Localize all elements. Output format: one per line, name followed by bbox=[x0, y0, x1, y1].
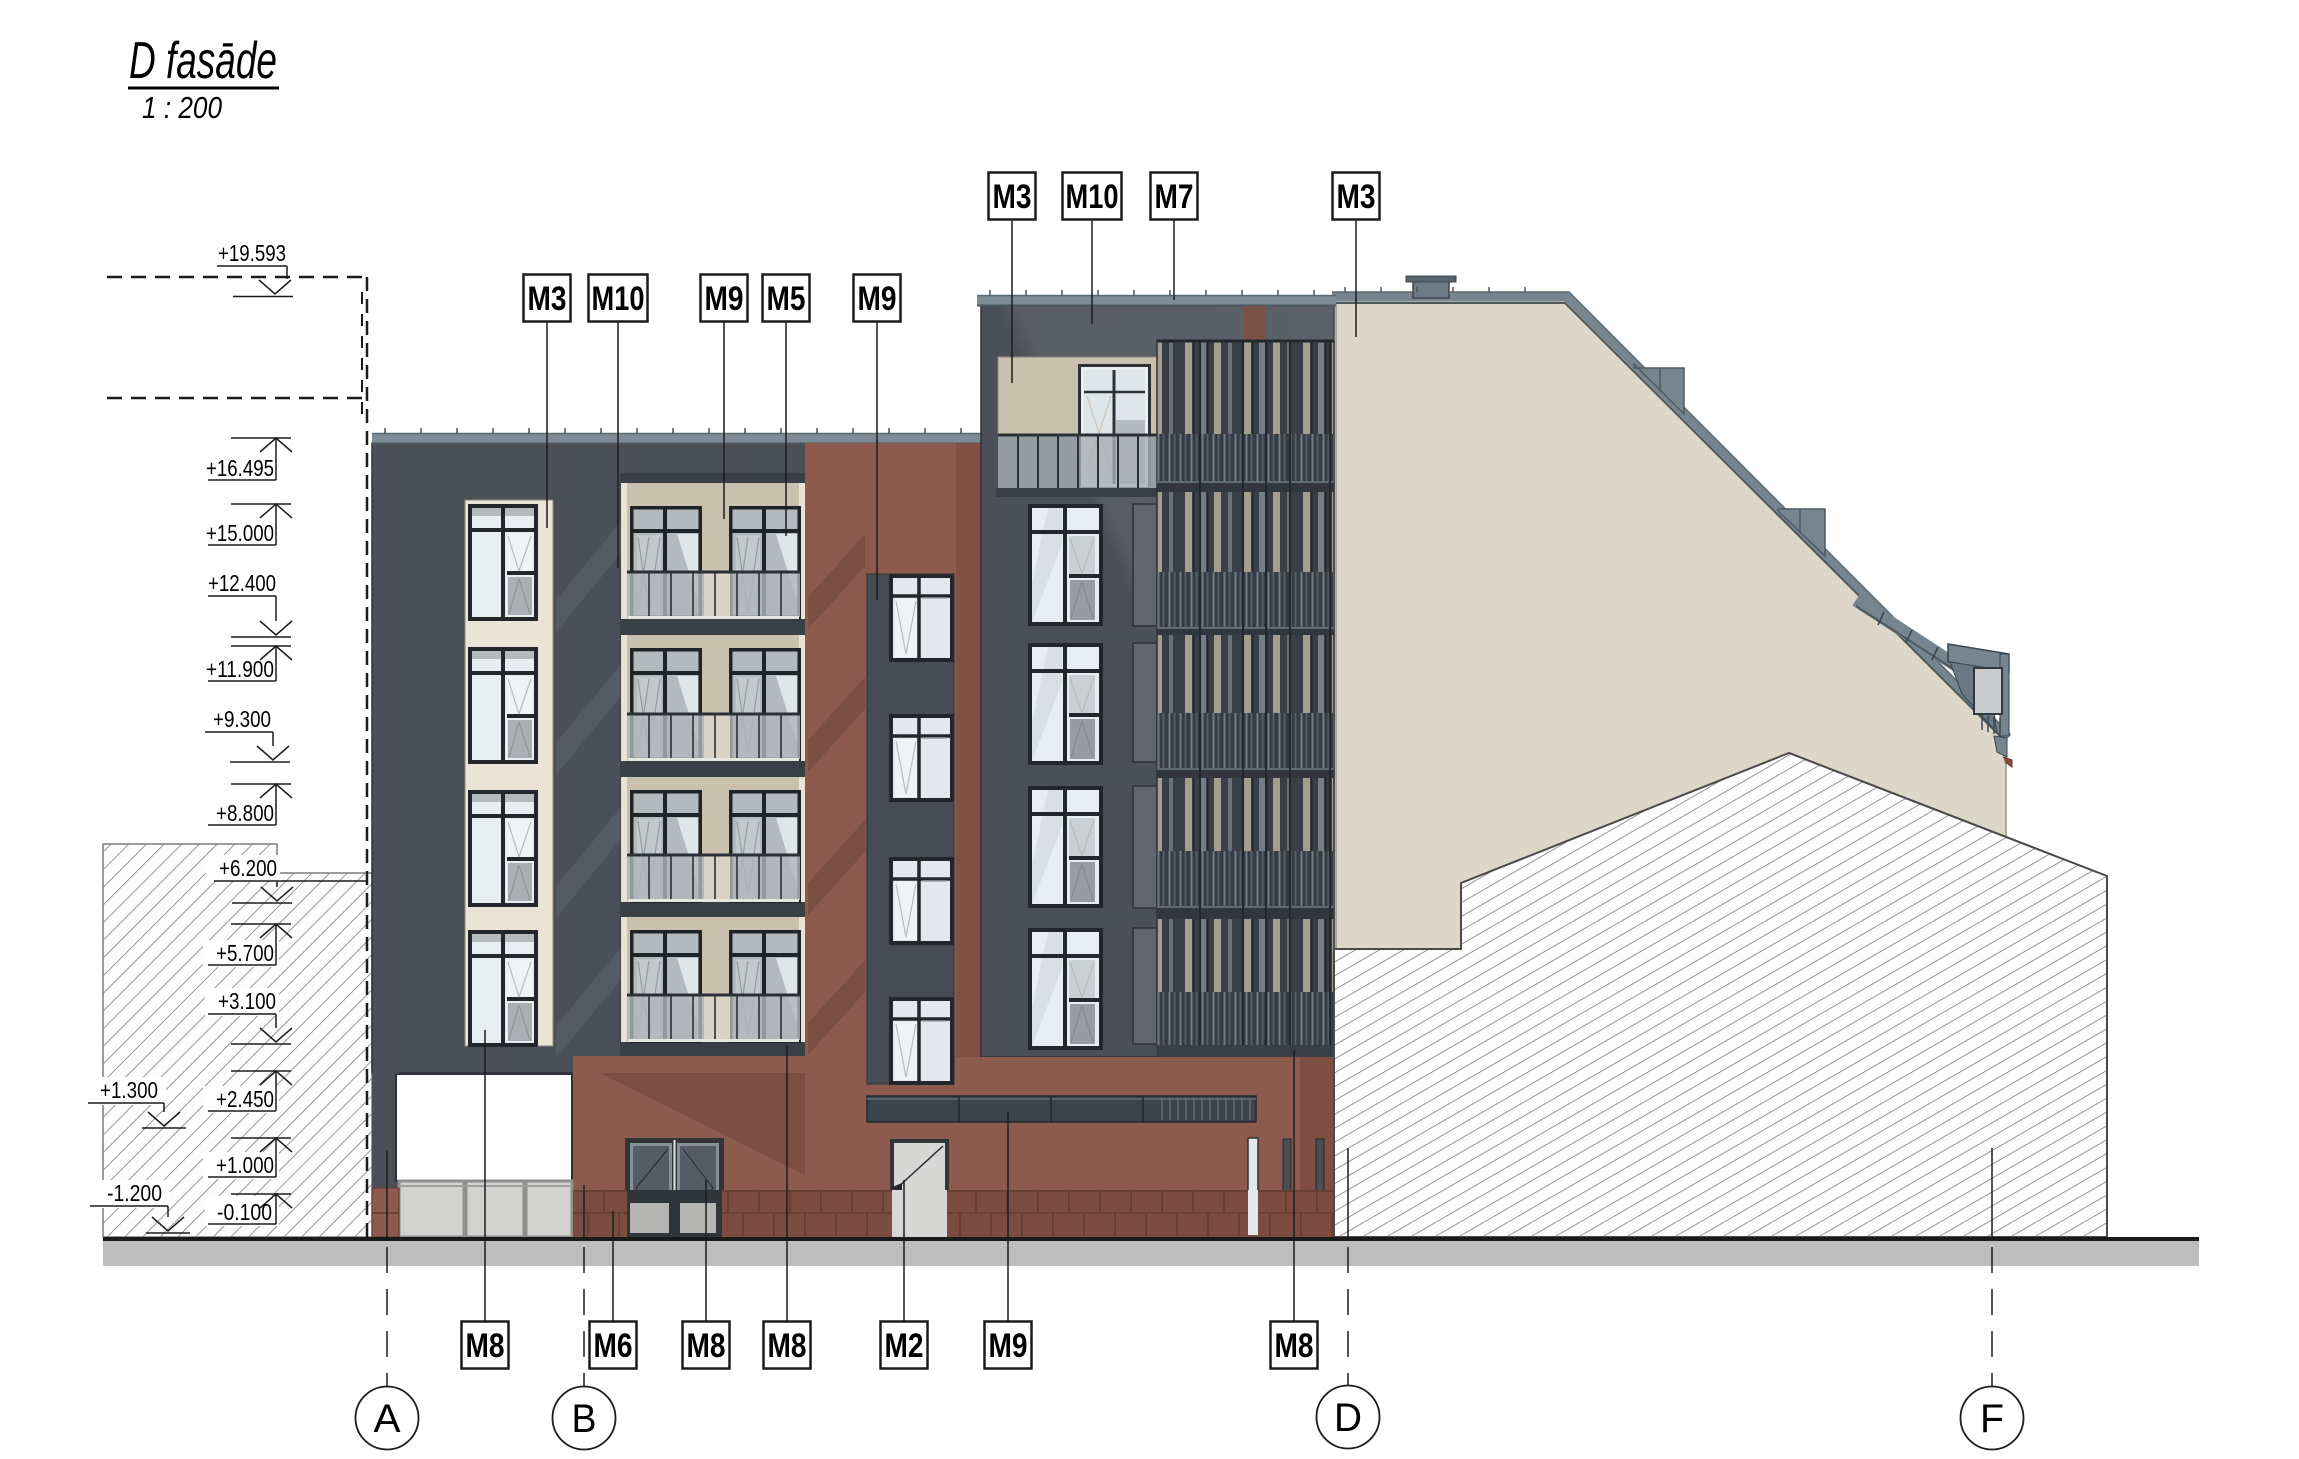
svg-text:+8.800: +8.800 bbox=[216, 800, 274, 826]
svg-text:D fasāde: D fasāde bbox=[129, 32, 277, 90]
svg-text:M10: M10 bbox=[1066, 178, 1119, 216]
svg-text:+15.000: +15.000 bbox=[206, 520, 274, 546]
svg-text:B: B bbox=[572, 1397, 597, 1441]
svg-text:+1.000: +1.000 bbox=[216, 1152, 274, 1178]
svg-text:M2: M2 bbox=[885, 1327, 924, 1365]
svg-text:1 : 200: 1 : 200 bbox=[142, 90, 222, 125]
svg-text:M8: M8 bbox=[768, 1327, 807, 1365]
svg-text:M3: M3 bbox=[528, 280, 567, 318]
svg-text:-0.100: -0.100 bbox=[217, 1199, 272, 1225]
svg-text:M10: M10 bbox=[592, 280, 645, 318]
svg-text:D: D bbox=[1334, 1396, 1362, 1440]
svg-text:M3: M3 bbox=[1337, 178, 1376, 216]
svg-text:A: A bbox=[374, 1397, 401, 1441]
svg-text:M7: M7 bbox=[1155, 178, 1194, 216]
svg-text:M9: M9 bbox=[989, 1327, 1028, 1365]
svg-text:+19.593: +19.593 bbox=[218, 240, 286, 266]
svg-text:+5.700: +5.700 bbox=[216, 940, 274, 966]
svg-text:+6.200: +6.200 bbox=[219, 855, 277, 881]
svg-text:M8: M8 bbox=[1275, 1327, 1314, 1365]
svg-text:+3.100: +3.100 bbox=[218, 988, 276, 1014]
svg-text:M8: M8 bbox=[687, 1327, 726, 1365]
svg-text:+9.300: +9.300 bbox=[213, 706, 271, 732]
svg-text:M6: M6 bbox=[594, 1327, 633, 1365]
svg-text:+11.900: +11.900 bbox=[206, 656, 274, 682]
svg-text:+1.300: +1.300 bbox=[100, 1077, 158, 1103]
svg-text:M3: M3 bbox=[993, 178, 1032, 216]
svg-text:F: F bbox=[1980, 1397, 2004, 1441]
svg-text:M8: M8 bbox=[466, 1327, 505, 1365]
svg-text:M5: M5 bbox=[767, 280, 806, 318]
svg-text:M9: M9 bbox=[858, 280, 897, 318]
svg-text:M9: M9 bbox=[705, 280, 744, 318]
svg-text:+16.495: +16.495 bbox=[206, 455, 274, 481]
svg-text:+12.400: +12.400 bbox=[208, 570, 276, 596]
svg-text:+2.450: +2.450 bbox=[216, 1086, 274, 1112]
svg-text:-1.200: -1.200 bbox=[107, 1180, 162, 1206]
